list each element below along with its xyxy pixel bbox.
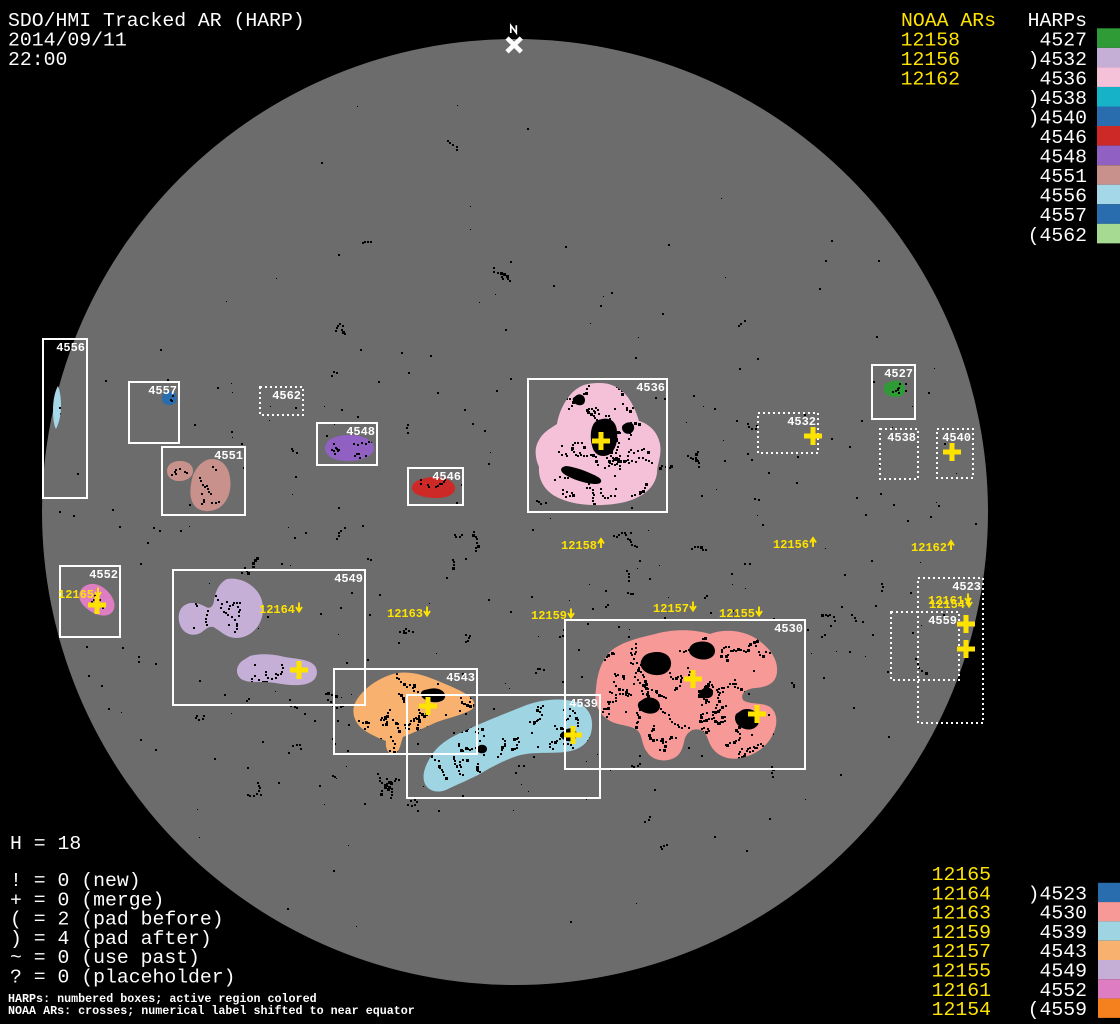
svg-text:4530: 4530 [774, 622, 803, 636]
svg-text:12154: 12154 [932, 999, 991, 1021]
svg-text:12155: 12155 [719, 607, 755, 621]
svg-text:12162: 12162 [901, 68, 960, 90]
svg-text:12163: 12163 [387, 607, 423, 621]
svg-text:4556: 4556 [56, 341, 85, 355]
svg-text:12165: 12165 [58, 588, 94, 602]
svg-text:12158: 12158 [561, 539, 597, 553]
svg-text:(4559: (4559 [1028, 999, 1087, 1021]
svg-text:4552: 4552 [89, 568, 118, 582]
svg-text:22:00: 22:00 [8, 49, 67, 71]
svg-text:H = 18: H = 18 [10, 833, 81, 855]
svg-text:? = 0 (placeholder): ? = 0 (placeholder) [10, 967, 236, 989]
svg-text:4559: 4559 [928, 614, 957, 628]
svg-text:4536: 4536 [636, 381, 665, 395]
svg-text:12156: 12156 [773, 538, 809, 552]
svg-text:(4562: (4562 [1028, 225, 1087, 247]
svg-text:4562: 4562 [272, 389, 301, 403]
svg-text:12164: 12164 [259, 603, 295, 617]
svg-text:4551: 4551 [214, 449, 243, 463]
svg-text:12162: 12162 [911, 541, 947, 555]
svg-text:4549: 4549 [334, 572, 363, 586]
svg-text:4523: 4523 [952, 580, 981, 594]
svg-text:4538: 4538 [887, 431, 916, 445]
svg-text:12159: 12159 [531, 609, 567, 623]
svg-text:12157: 12157 [653, 602, 689, 616]
svg-text:12161: 12161 [928, 594, 964, 608]
svg-text:NOAA ARs: crosses; numerical l: NOAA ARs: crosses; numerical label shift… [8, 1004, 415, 1018]
svg-text:4539: 4539 [569, 697, 598, 711]
svg-text:4540: 4540 [942, 431, 971, 445]
svg-text:4543: 4543 [446, 671, 475, 685]
svg-text:4557: 4557 [148, 384, 177, 398]
svg-text:4546: 4546 [432, 470, 461, 484]
svg-text:4527: 4527 [884, 367, 913, 381]
svg-text:4548: 4548 [346, 425, 375, 439]
svg-text:4532: 4532 [787, 415, 816, 429]
